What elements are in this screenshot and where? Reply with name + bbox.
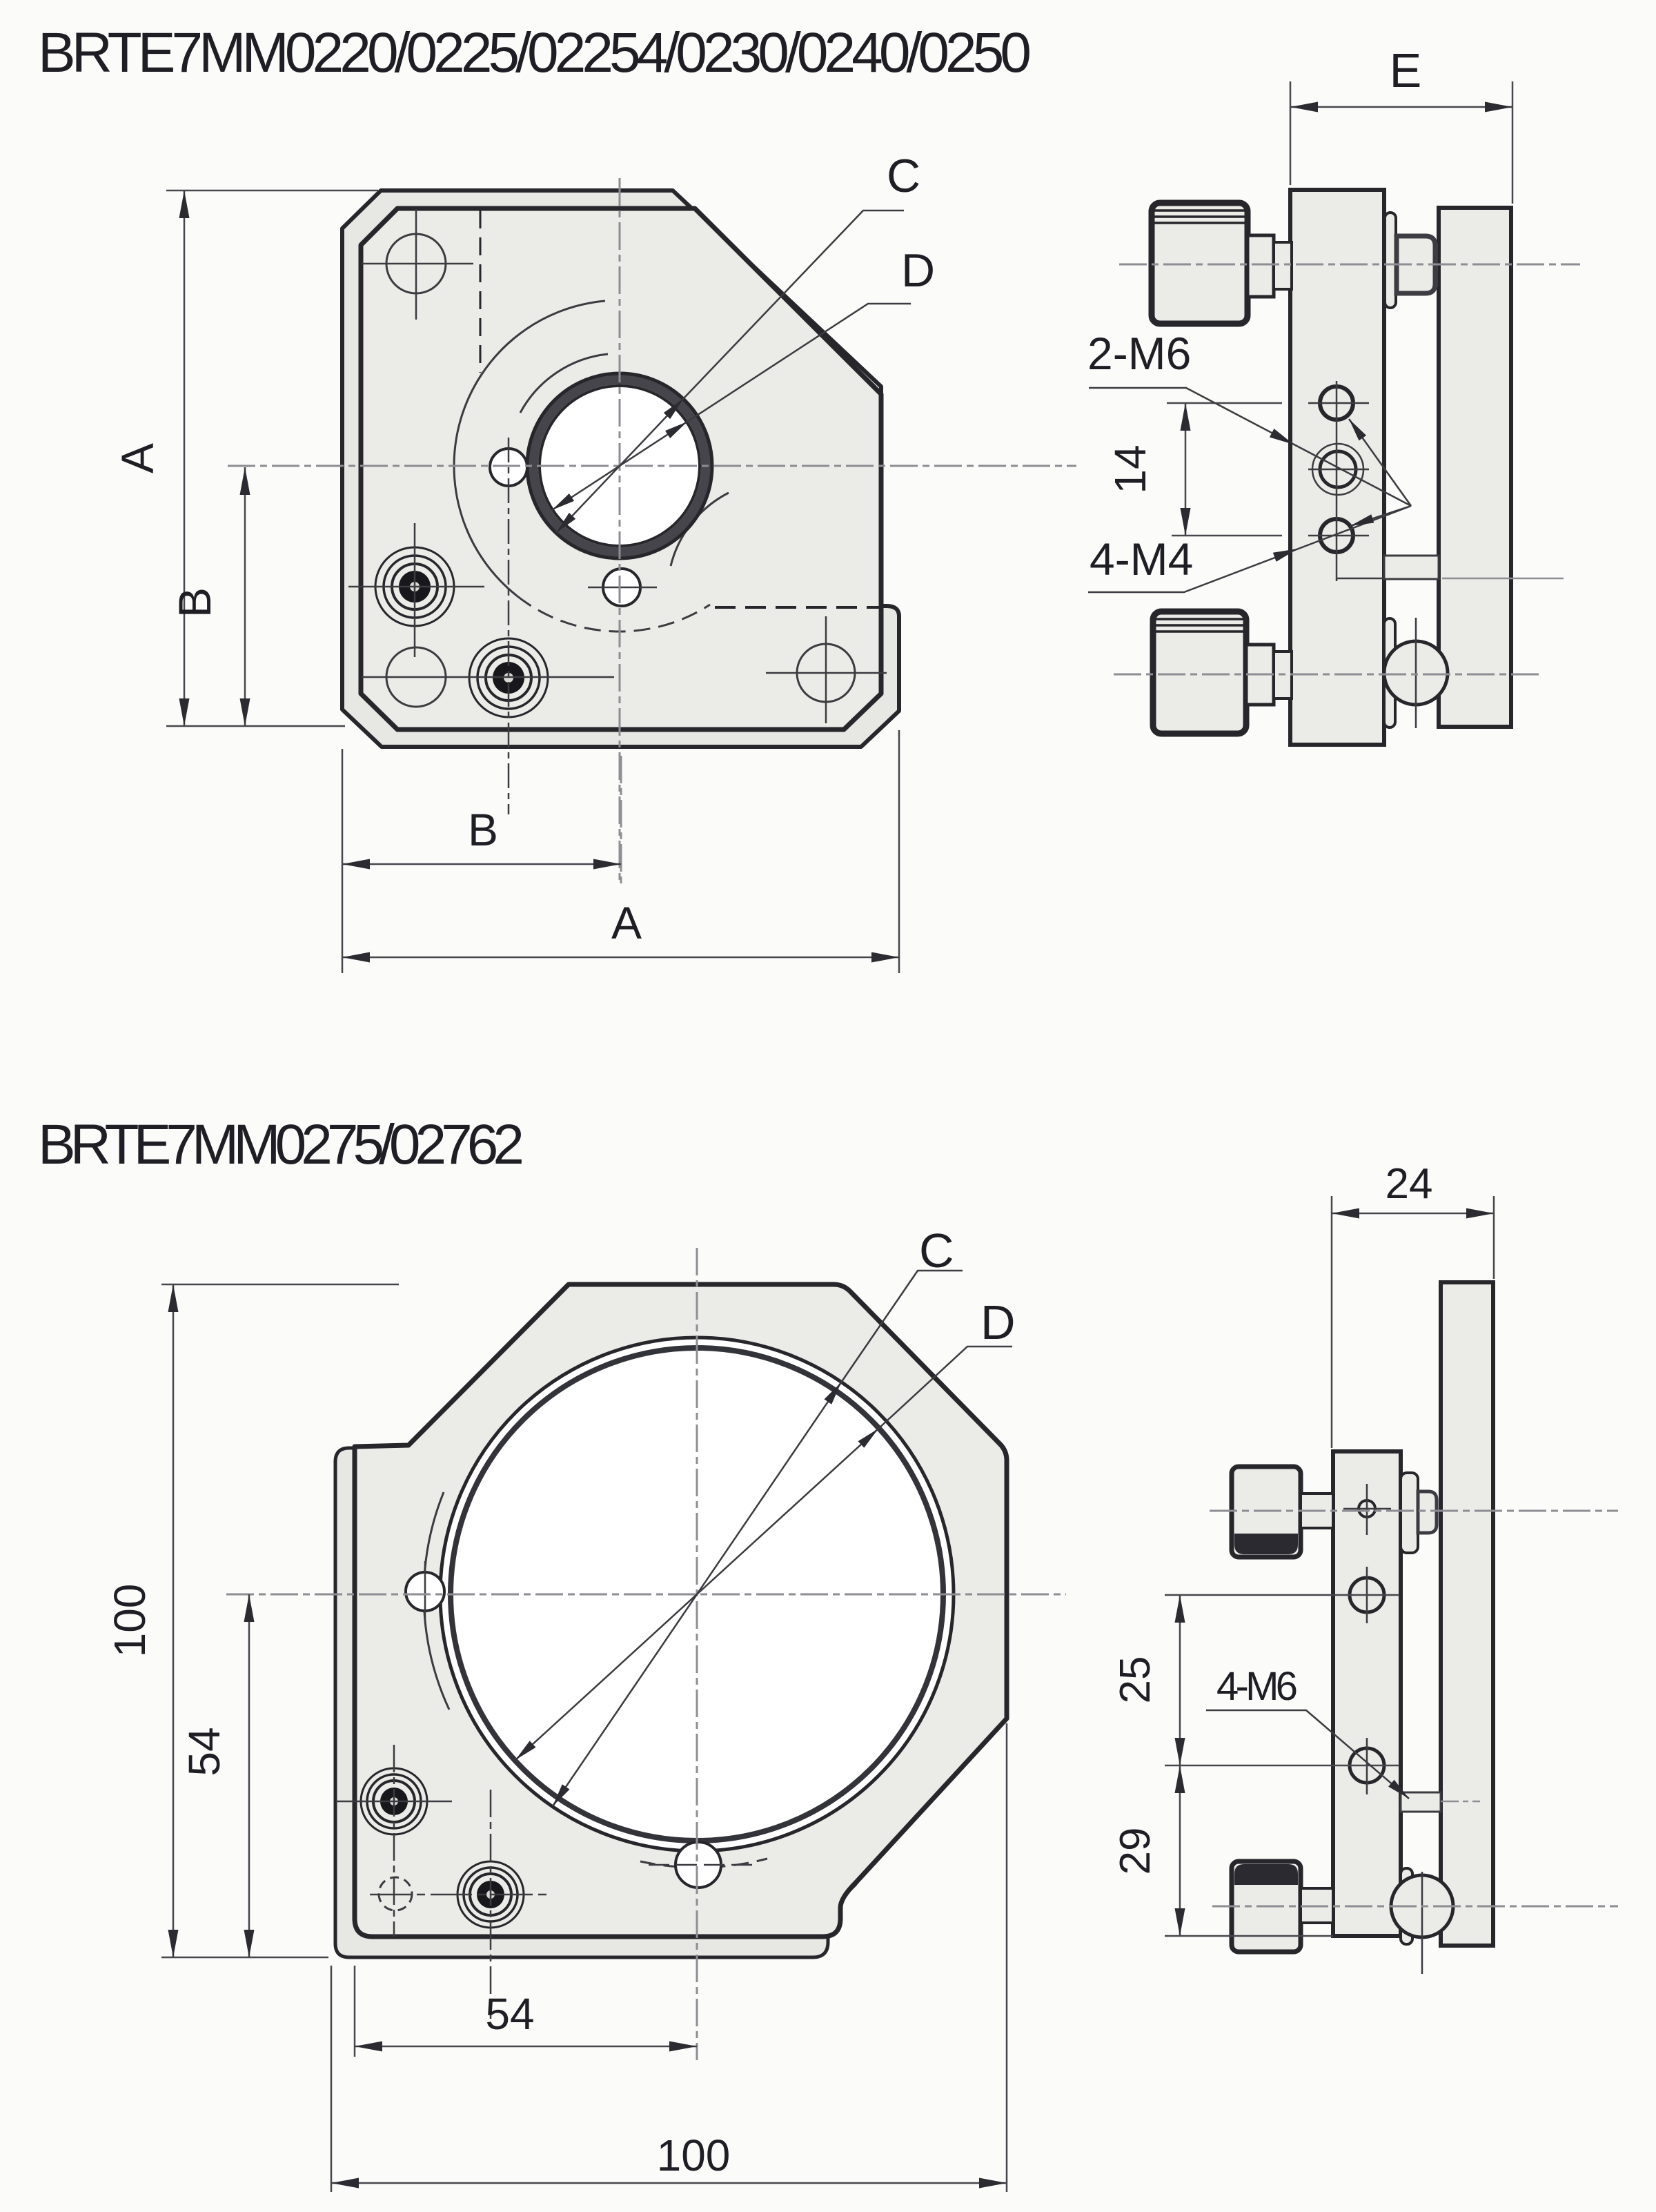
svg-text:100: 100 (657, 2131, 731, 2180)
svg-text:100: 100 (105, 1584, 155, 1658)
svg-text:4-M6: 4-M6 (1216, 1664, 1298, 1709)
svg-text:E: E (1390, 43, 1422, 97)
svg-text:24: 24 (1386, 1160, 1433, 1208)
svg-text:4-M4: 4-M4 (1090, 534, 1193, 585)
svg-text:C: C (887, 150, 920, 202)
svg-text:C: C (919, 1224, 954, 1278)
svg-text:D: D (980, 1295, 1016, 1349)
svg-text:2-M6: 2-M6 (1087, 328, 1191, 379)
svg-text:D: D (901, 244, 935, 297)
svg-text:B: B (468, 804, 498, 855)
svg-text:A: A (611, 897, 642, 948)
svg-text:14: 14 (1105, 444, 1155, 493)
svg-text:54: 54 (179, 1727, 229, 1776)
svg-text:54: 54 (485, 1989, 534, 2039)
svg-text:A: A (112, 443, 163, 473)
svg-text:BRTE7MM0275/02762: BRTE7MM0275/02762 (38, 1113, 524, 1176)
svg-text:29: 29 (1112, 1828, 1159, 1875)
svg-text:25: 25 (1112, 1656, 1159, 1704)
svg-text:B: B (169, 587, 220, 618)
svg-text:BRTE7MM0220/0225/02254/0230/02: BRTE7MM0220/0225/02254/0230/0240/0250 (38, 21, 1032, 84)
